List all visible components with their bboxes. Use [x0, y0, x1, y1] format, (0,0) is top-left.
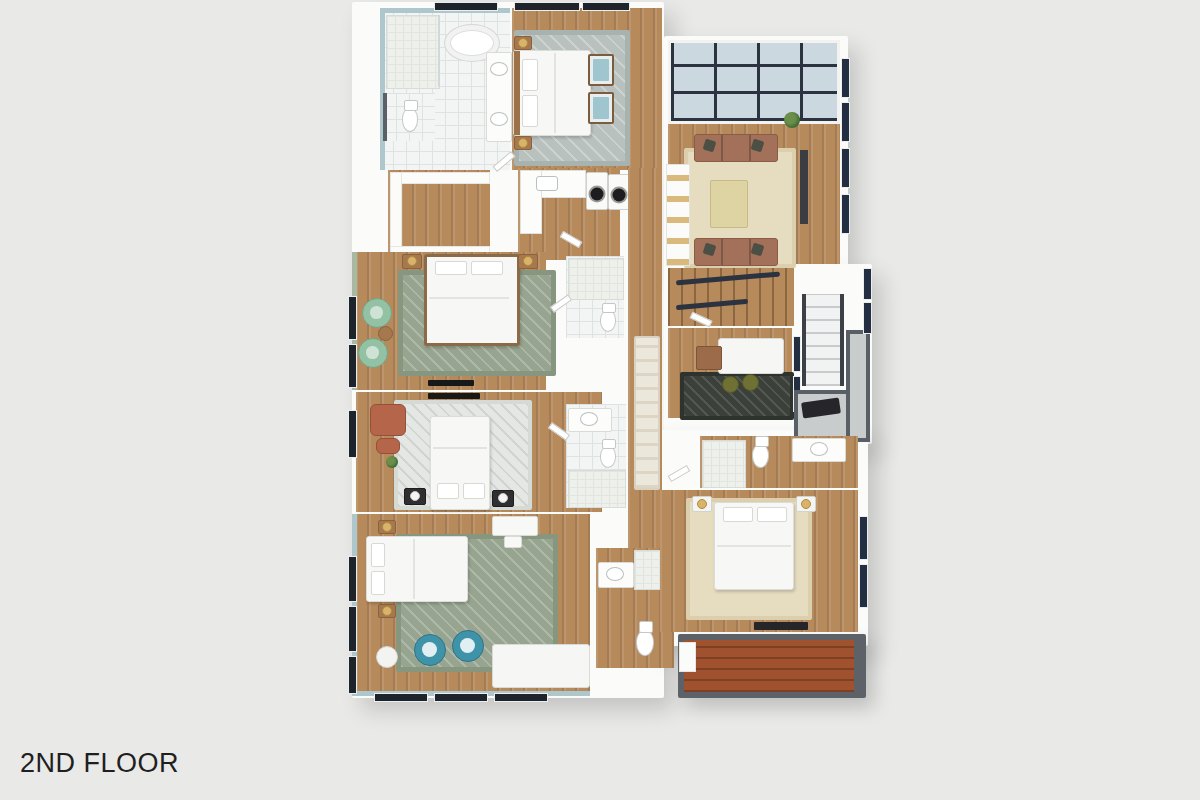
- hall-bathroom-shower: [568, 470, 626, 508]
- master-lamp-2: [518, 138, 528, 148]
- bottom-bathroom-sink: [606, 567, 624, 581]
- bedroom2-poster-bed: [424, 254, 520, 346]
- bedroom2-pillow-1: [435, 261, 467, 275]
- bedroom4-window-1: [348, 556, 357, 602]
- master-accent-chair-1-seat: [593, 59, 609, 81]
- office-window-1: [793, 336, 801, 372]
- bedroom4-lamp-2: [382, 606, 392, 616]
- bedroom4-window-bottom-2: [434, 693, 488, 702]
- bedroom5-pillow-1: [723, 507, 753, 522]
- bedroom4-pillow-1: [371, 543, 385, 567]
- bedroom3-pillow-2: [463, 483, 485, 499]
- bedroom4-window-bottom-3: [494, 693, 548, 702]
- bedroom3-lamp-2: [498, 493, 508, 503]
- ensuite-shower: [702, 440, 746, 488]
- bedroom4-daybed: [492, 644, 590, 688]
- bedroom4-window-bottom-1: [374, 693, 428, 702]
- bedroom4-desk-chair: [504, 536, 522, 548]
- bedroom4-duvet-fold: [413, 539, 415, 599]
- closet-shelf-top: [390, 172, 490, 184]
- coffee-table: [710, 180, 748, 228]
- master-toilet: [402, 108, 418, 132]
- stairwell-window-1: [863, 268, 872, 300]
- bedroom2-window-2: [348, 344, 357, 388]
- bedroom2-lamp-1: [407, 256, 417, 266]
- bedroom2-duvet-fold: [429, 297, 509, 299]
- sunroom-window-2: [841, 102, 850, 142]
- bedroom4-swivel-chair-2: [452, 630, 484, 662]
- bedroom4-desk: [492, 516, 538, 536]
- master-bed: [513, 50, 591, 136]
- center-bathroom-toilet: [600, 310, 616, 332]
- office-pouf-2: [742, 374, 759, 391]
- bottom-bathroom-toilet: [636, 630, 654, 656]
- master-pillow-2: [522, 95, 538, 127]
- ensuite-sink: [810, 442, 828, 456]
- master-accent-chair-2-seat: [593, 97, 609, 119]
- bedroom5-window-2: [859, 564, 868, 608]
- sunroom-plant: [784, 112, 800, 128]
- window-top-2: [514, 2, 580, 11]
- floor-plan-render: 2ND FLOOR: [0, 0, 1200, 800]
- master-duvet-fold: [554, 53, 556, 133]
- bedroom5-window-1: [859, 516, 868, 560]
- bedroom4-swivel-chair-1: [414, 634, 446, 666]
- bedroom2-tv: [428, 380, 474, 386]
- stairwell-window-2: [863, 302, 872, 334]
- floor-label: 2ND FLOOR: [20, 748, 179, 779]
- bedroom4-bed: [366, 536, 468, 602]
- bedroom4-pillow-2: [371, 571, 385, 595]
- bedroom3-plant: [386, 456, 398, 468]
- master-sink-1: [490, 62, 508, 76]
- bedroom4-window-2: [348, 606, 357, 652]
- bedroom3-armchair: [370, 404, 406, 436]
- stair-landing-strip: [846, 330, 870, 442]
- master-sink-2: [490, 112, 508, 126]
- bedroom3-pillow-1: [437, 483, 459, 499]
- bedroom4-lamp-1: [382, 522, 392, 532]
- staircase-side: [802, 294, 844, 386]
- deck-step: [679, 642, 696, 672]
- laundry-sink: [536, 176, 558, 191]
- bedroom5-media-console: [754, 622, 808, 630]
- fireplace: [800, 150, 808, 224]
- linen-closet-shelves: [666, 164, 690, 266]
- bedroom4-pouf: [376, 646, 398, 668]
- bedroom2-lamp-2: [523, 256, 533, 266]
- bedroom2-green-chair-2: [358, 338, 388, 368]
- bedroom3-bed: [430, 416, 490, 510]
- office-desk: [696, 346, 722, 370]
- window-top-3: [582, 2, 630, 11]
- bedroom5-duvet-fold: [717, 545, 791, 547]
- master-lamp-1: [518, 38, 528, 48]
- hall-bathroom-sink: [580, 412, 598, 426]
- bedroom5-pillow-2: [757, 507, 787, 522]
- bedroom2-pillow-2: [471, 261, 503, 275]
- ensuite-toilet: [752, 444, 769, 468]
- window-top-1: [434, 2, 498, 11]
- bedroom2-side-table: [378, 326, 393, 341]
- master-shower: [386, 15, 440, 89]
- hall-bathroom-toilet: [600, 446, 616, 468]
- master-shower-glass: [438, 15, 440, 87]
- master-accent-chair-1: [588, 54, 614, 86]
- bedroom4-window-3: [348, 656, 357, 694]
- hallway-runner-rug: [634, 336, 660, 490]
- office-daybed: [718, 338, 784, 374]
- deck-floor: [684, 640, 854, 692]
- bedroom2-window-1: [348, 296, 357, 340]
- master-headboard: [514, 51, 520, 135]
- sunroom-window-1: [841, 58, 850, 98]
- master-accent-chair-2: [588, 92, 614, 124]
- master-pillow-1: [522, 59, 538, 91]
- bedroom2-green-chair-1: [362, 298, 392, 328]
- office-pouf-1: [722, 376, 739, 393]
- bedroom5-bed: [714, 502, 794, 590]
- washer: [586, 172, 608, 210]
- bedroom5-lamp-1: [697, 499, 707, 509]
- sunroom-window-3: [841, 148, 850, 188]
- bedroom3-window: [348, 410, 357, 458]
- bedroom3-tv: [428, 393, 480, 399]
- sunroom-window-4: [841, 194, 850, 234]
- bedroom5-lamp-2: [801, 499, 811, 509]
- sunroom-skylight: [668, 40, 840, 124]
- center-bathroom-shower: [568, 258, 624, 300]
- bedroom3-lamp-1: [410, 491, 420, 501]
- bedroom3-ottoman: [376, 438, 400, 454]
- master-bathroom-wall-accent-left: [380, 8, 385, 170]
- water-closet-accent-wall: [383, 93, 387, 141]
- bedroom3-duvet-fold: [433, 447, 487, 449]
- dryer: [608, 174, 630, 210]
